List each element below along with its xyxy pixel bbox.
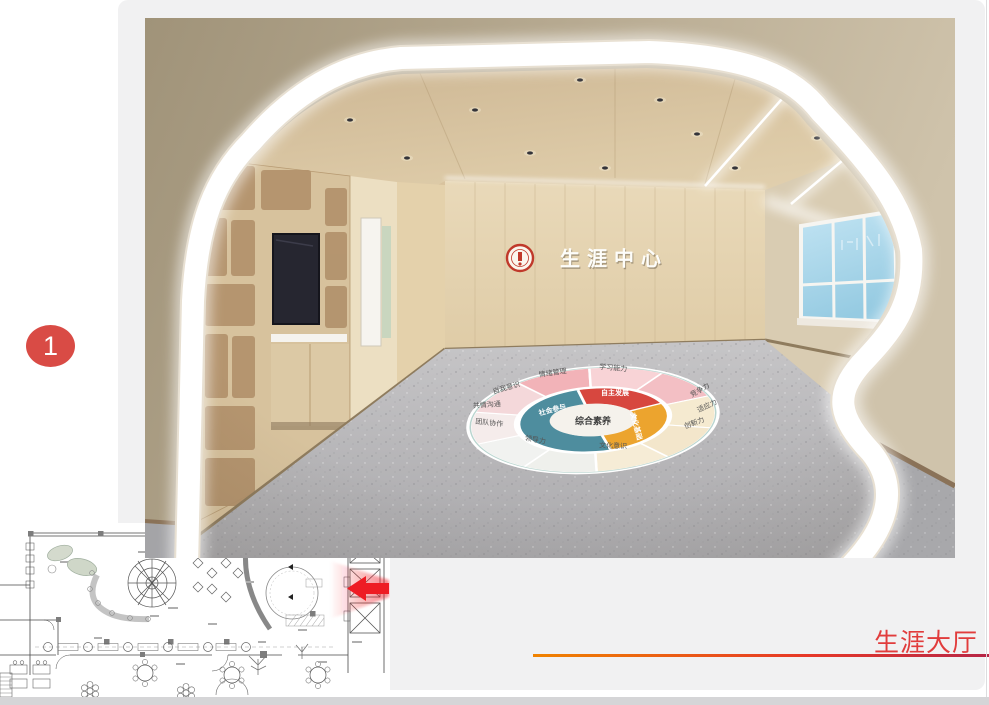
spiral-stair — [128, 559, 176, 607]
presentation-slide: { "slide": { "number_badge": "1", "capti… — [0, 0, 989, 705]
bottom-strip — [0, 697, 989, 705]
slide-right-edge — [986, 0, 987, 697]
rendering-image: 情绪管理 学习能力 自我意识 共情沟通 团队协作 领导力 文化意识 竞争力 适应… — [145, 18, 955, 558]
slide-number-badge: 1 — [26, 325, 75, 367]
caption-divider — [533, 654, 989, 657]
